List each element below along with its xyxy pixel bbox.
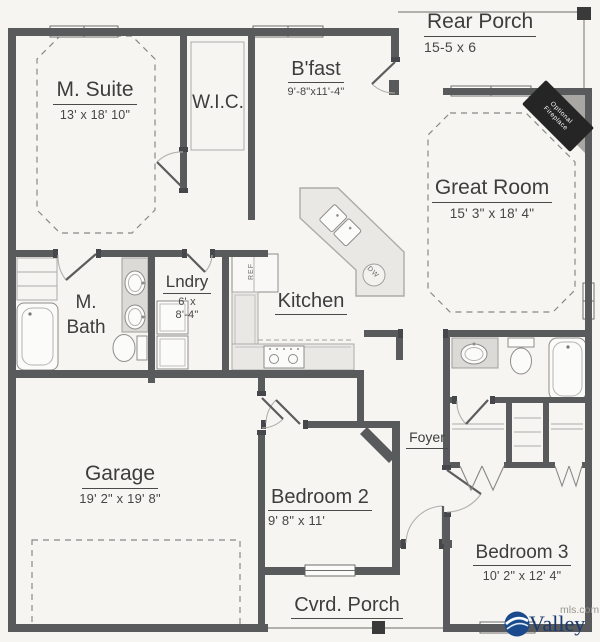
room-dims: 13' x 18' 10" bbox=[38, 108, 152, 122]
floorplan-page: M. Suite 13' x 18' 10" W.I.C. B'fast 9'-… bbox=[0, 0, 600, 642]
label-cvrd-porch: Cvrd. Porch bbox=[280, 594, 414, 619]
room-name: Garage bbox=[82, 462, 158, 489]
toilet bbox=[113, 335, 135, 362]
watermark-suffix: mls.com bbox=[560, 604, 599, 616]
toilet-tank bbox=[508, 338, 534, 347]
room-name: Rear Porch bbox=[424, 10, 536, 37]
room-dims: 10' 2" x 12' 4" bbox=[460, 569, 584, 583]
label-bedroom-2: Bedroom 2 9' 8" x 11' bbox=[268, 486, 400, 529]
kitchen-island bbox=[300, 188, 404, 296]
room-name: Foyer bbox=[406, 430, 448, 449]
toilet bbox=[511, 348, 532, 374]
room-name: Kitchen bbox=[275, 290, 348, 315]
room-name: M. bbox=[56, 292, 116, 313]
room-dims: 6' x bbox=[154, 296, 220, 308]
room-name: B'fast bbox=[288, 58, 343, 83]
kitchen-fixtures bbox=[232, 188, 404, 370]
ref-annotation: REF bbox=[248, 263, 255, 280]
label-rear-porch: Rear Porch 15-5 x 6 bbox=[424, 10, 554, 55]
room-name: Great Room bbox=[432, 176, 552, 203]
room-dims: 9'-8"x11'-4" bbox=[272, 86, 360, 98]
room-name: Bedroom 2 bbox=[268, 486, 372, 511]
room-dims: 15' 3" x 18' 4" bbox=[418, 206, 566, 221]
label-bedroom-3: Bedroom 3 10' 2" x 12' 4" bbox=[460, 542, 584, 583]
label-great-room: Great Room 15' 3" x 18' 4" bbox=[418, 176, 566, 221]
refrigerator bbox=[232, 254, 278, 292]
room-name: W.I.C. bbox=[189, 92, 247, 115]
room-dims: 9' 8" x 11' bbox=[268, 514, 400, 529]
room-name: Bedroom 3 bbox=[473, 542, 572, 566]
valleymls-logo-icon bbox=[504, 611, 530, 637]
label-foyer: Foyer bbox=[400, 430, 454, 449]
label-bfast: B'fast 9'-8"x11'-4" bbox=[272, 58, 360, 99]
hall-bath-fixtures bbox=[452, 338, 586, 400]
label-garage: Garage 19' 2" x 19' 8" bbox=[60, 462, 180, 506]
label-wic: W.I.C. bbox=[180, 92, 256, 115]
room-dims: 15-5 x 6 bbox=[424, 40, 554, 56]
room-name: M. Suite bbox=[53, 78, 136, 105]
front-porch-post bbox=[372, 621, 385, 634]
valleymls-watermark: Valley mls.com bbox=[504, 604, 600, 640]
room-dims: 8'-4" bbox=[154, 309, 220, 321]
rear-porch-post bbox=[577, 7, 591, 20]
toilet-tank bbox=[137, 336, 147, 360]
label-lndry: Lndry 6' x 8'-4" bbox=[154, 272, 220, 322]
room-name: Bath bbox=[56, 317, 116, 338]
room-name: Cvrd. Porch bbox=[291, 594, 403, 619]
label-m-bath: M. Bath bbox=[56, 292, 116, 339]
label-kitchen: Kitchen bbox=[264, 290, 358, 315]
room-dims: 19' 2" x 19' 8" bbox=[60, 492, 180, 507]
room-name: Lndry bbox=[163, 272, 212, 294]
bifold-closet-doors bbox=[460, 466, 582, 490]
label-m-suite: M. Suite 13' x 18' 10" bbox=[38, 78, 152, 122]
